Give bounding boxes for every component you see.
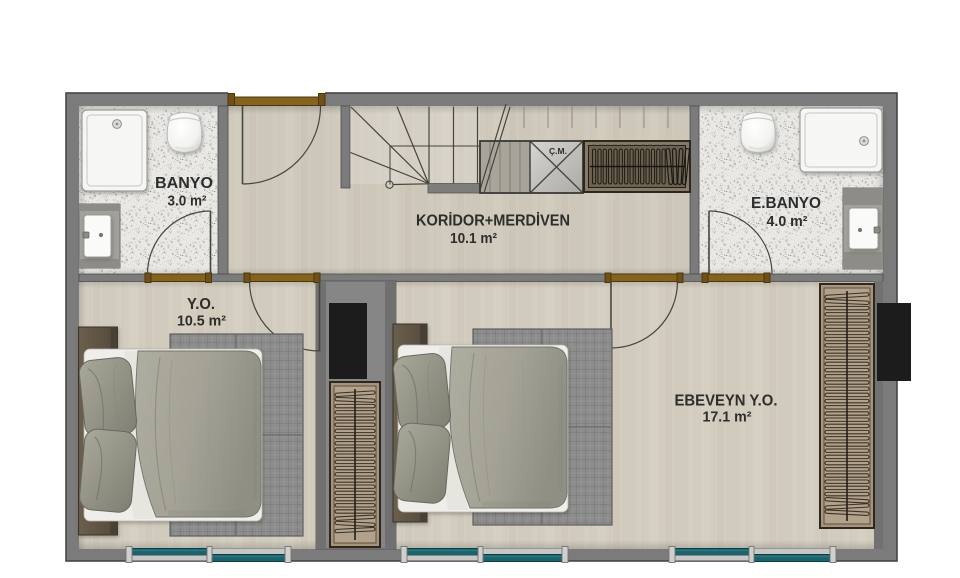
svg-text:10.5 m²: 10.5 m² bbox=[177, 314, 226, 330]
svg-text:3.0 m²: 3.0 m² bbox=[168, 194, 207, 210]
svg-text:Y.O.: Y.O. bbox=[187, 296, 215, 313]
svg-text:17.1 m²: 17.1 m² bbox=[703, 410, 752, 426]
svg-text:KORİDOR+MERDİVEN: KORİDOR+MERDİVEN bbox=[416, 213, 570, 230]
svg-text:4.0 m²: 4.0 m² bbox=[767, 214, 808, 230]
svg-text:BANYO: BANYO bbox=[155, 175, 213, 192]
svg-text:10.1 m²: 10.1 m² bbox=[450, 231, 497, 247]
svg-text:EBEVEYN Y.O.: EBEVEYN Y.O. bbox=[675, 393, 778, 410]
svg-text:E.BANYO: E.BANYO bbox=[751, 195, 821, 212]
svg-text:Ç.M.: Ç.M. bbox=[549, 146, 567, 156]
